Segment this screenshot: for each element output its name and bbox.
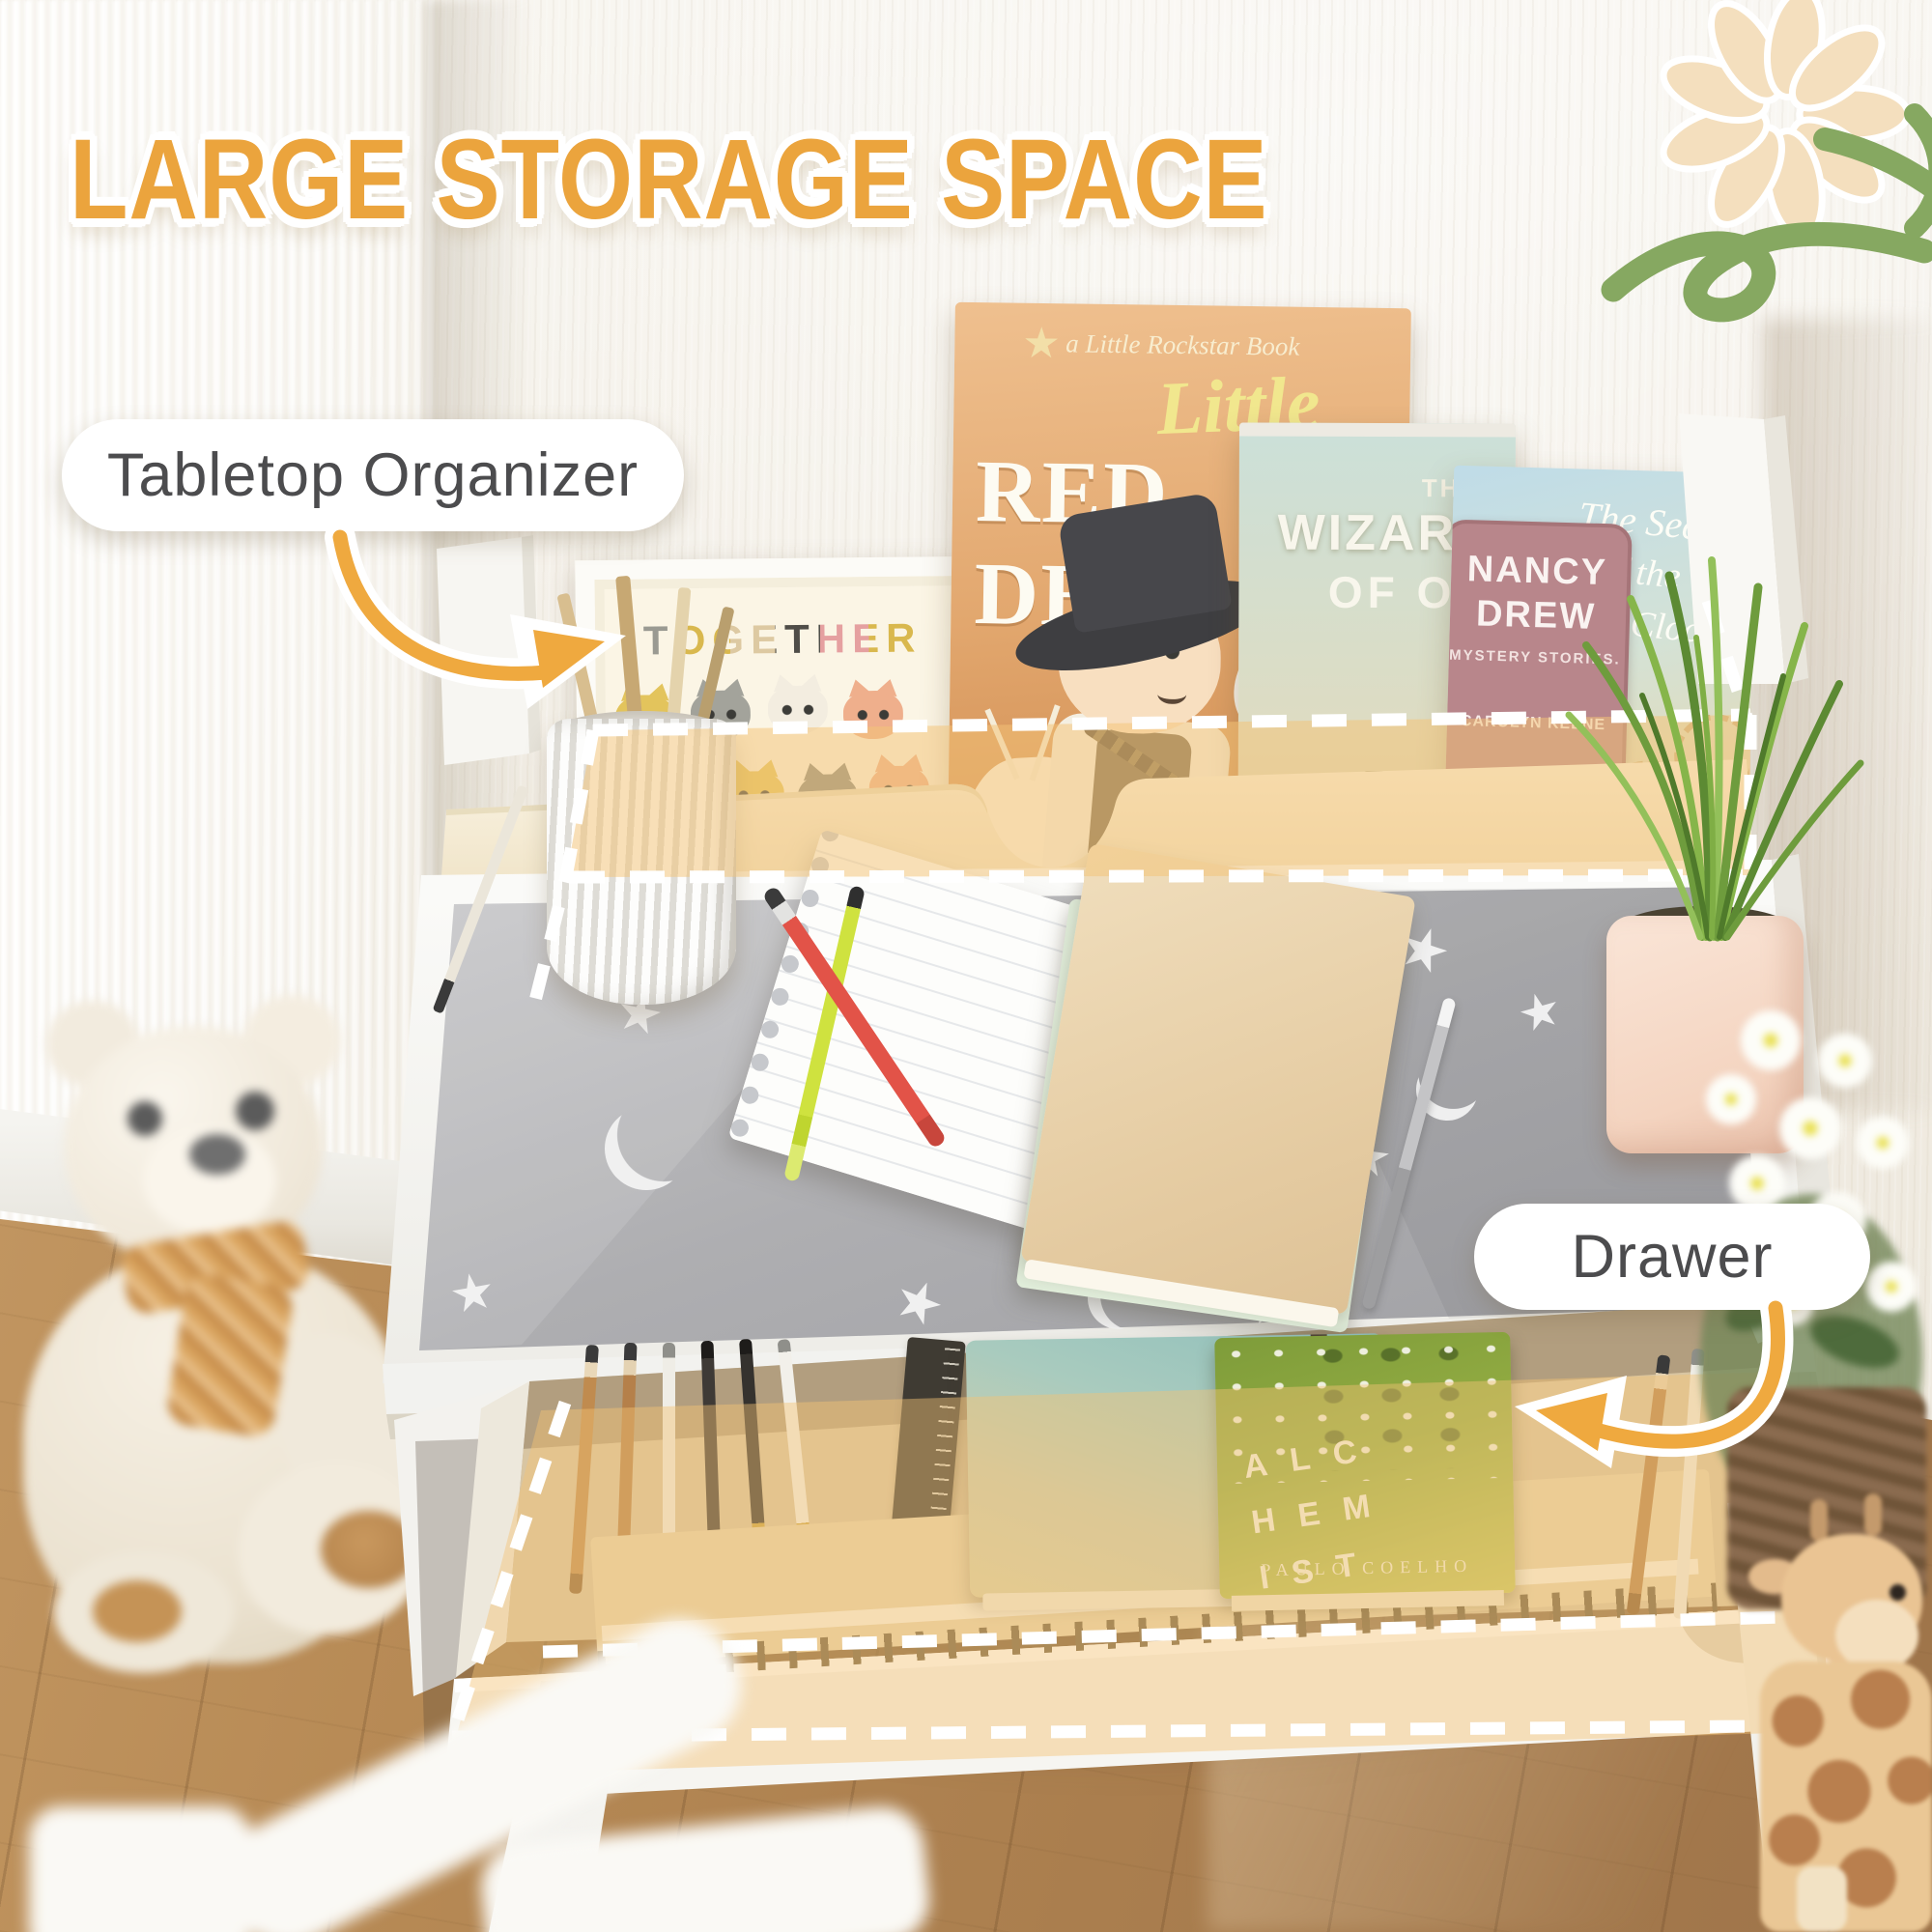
cat-face bbox=[869, 765, 930, 814]
series-badge: NANCY DREW MYSTERY STORIES. CAROLYN KEEN… bbox=[1440, 519, 1633, 790]
flower-bloom bbox=[1857, 1117, 1909, 1169]
book-imprint: a Little Rockstar Book bbox=[954, 327, 1410, 364]
flower-bloom bbox=[1866, 1262, 1917, 1312]
series-name: NANCY bbox=[1447, 549, 1628, 595]
book-title-script: Clock bbox=[1629, 603, 1719, 653]
flower-bloom bbox=[1818, 1034, 1872, 1088]
giraffe-plush bbox=[1747, 1499, 1932, 1932]
flower-bloom bbox=[1706, 1074, 1756, 1124]
cat-face bbox=[768, 686, 829, 735]
pencil-cup bbox=[547, 719, 736, 1005]
callout-label: Drawer bbox=[1571, 1222, 1773, 1292]
cowboy-hat bbox=[1057, 492, 1232, 634]
giraffe-horn bbox=[1810, 1499, 1828, 1542]
book-alchemist: ALCHEMIST PAULO COELHO bbox=[1214, 1332, 1516, 1599]
chair-blurred bbox=[58, 1681, 985, 1932]
teddy-bear bbox=[0, 1012, 430, 1679]
flower-bloom bbox=[1779, 1097, 1841, 1159]
series-subtitle: MYSTERY STORIES. bbox=[1445, 647, 1625, 668]
headline: LARGE STORAGE SPACE bbox=[70, 114, 1267, 245]
cat-face bbox=[843, 691, 904, 740]
callout-label: Tabletop Organizer bbox=[107, 440, 639, 510]
giraffe-horn bbox=[1864, 1493, 1882, 1536]
chair-leg bbox=[29, 1806, 251, 1932]
cowboy-smile bbox=[1157, 684, 1186, 704]
giraffe-eye bbox=[1889, 1584, 1906, 1601]
product-scene: TOGETHER ★ a Little Rockstar Book Little… bbox=[0, 0, 1932, 1932]
teddy-nose bbox=[189, 1134, 245, 1175]
callout-tabletop-organizer: Tabletop Organizer bbox=[62, 419, 684, 531]
giraffe-muzzle bbox=[1835, 1600, 1918, 1671]
teddy-eye bbox=[128, 1101, 162, 1136]
giraffe-leg bbox=[1797, 1866, 1847, 1932]
teddy-foot-pad bbox=[93, 1580, 182, 1642]
chair-seat bbox=[477, 1803, 933, 1932]
tan-book bbox=[1020, 843, 1416, 1315]
book-author: CAROLYN KEENE bbox=[1443, 713, 1623, 735]
series-name: DREW bbox=[1446, 593, 1627, 639]
cat-face bbox=[798, 774, 859, 823]
book-page-edge bbox=[1239, 423, 1516, 438]
teddy-eye bbox=[236, 1092, 274, 1130]
flower-bloom bbox=[1741, 1010, 1801, 1070]
callout-drawer: Drawer bbox=[1474, 1204, 1870, 1310]
print-title: TOGETHER bbox=[595, 614, 970, 665]
teddy-paw-pad bbox=[321, 1511, 417, 1588]
